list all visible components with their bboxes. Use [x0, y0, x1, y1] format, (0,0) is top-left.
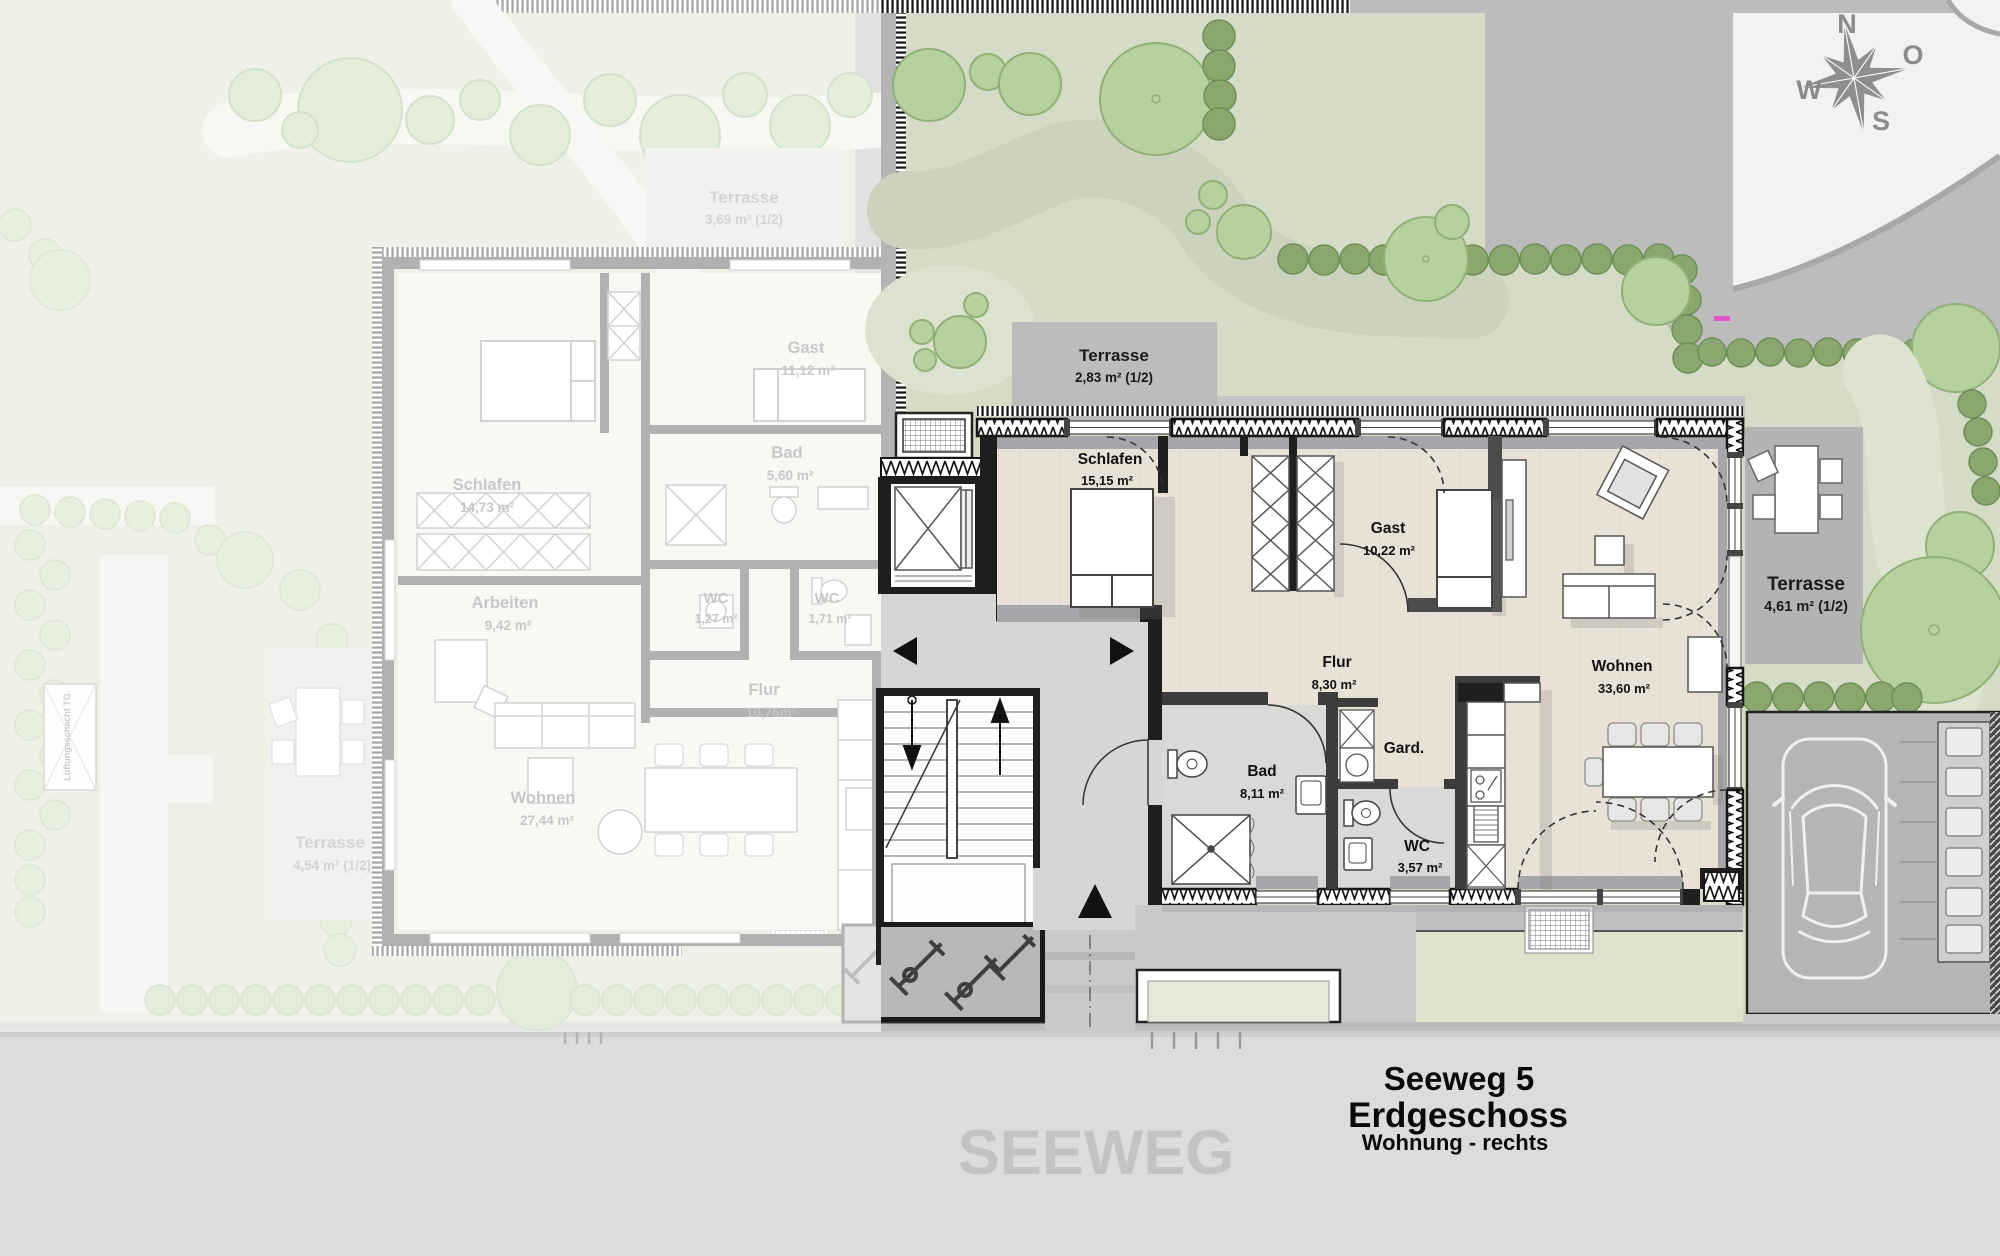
svg-text:Gard.: Gard.	[1384, 740, 1424, 757]
svg-text:2,83 m² (1/2): 2,83 m² (1/2)	[1075, 370, 1153, 385]
svg-text:3,57 m²: 3,57 m²	[1398, 860, 1443, 875]
svg-text:W: W	[1796, 75, 1822, 105]
svg-text:Bad: Bad	[1247, 763, 1276, 780]
svg-text:10,22 m²: 10,22 m²	[1363, 543, 1416, 558]
svg-text:Wohnen: Wohnen	[1592, 658, 1653, 675]
svg-text:Wohnung - rechts: Wohnung - rechts	[1362, 1130, 1549, 1155]
svg-text:Seeweg 5: Seeweg 5	[1384, 1060, 1534, 1097]
svg-text:O: O	[1902, 40, 1923, 70]
svg-text:8,30 m²: 8,30 m²	[1312, 677, 1357, 692]
svg-text:8,11 m²: 8,11 m²	[1240, 786, 1285, 801]
svg-text:S: S	[1872, 106, 1890, 136]
svg-text:4,61 m² (1/2): 4,61 m² (1/2)	[1764, 599, 1848, 615]
svg-text:SEEWEG: SEEWEG	[958, 1118, 1235, 1188]
svg-text:Gast: Gast	[1371, 520, 1405, 537]
svg-text:Terrasse: Terrasse	[1079, 346, 1149, 365]
svg-text:WC: WC	[1404, 838, 1430, 855]
svg-text:Schlafen: Schlafen	[1078, 451, 1143, 468]
svg-text:Flur: Flur	[1322, 654, 1351, 671]
svg-text:N: N	[1837, 9, 1857, 39]
svg-text:Terrasse: Terrasse	[1767, 574, 1845, 595]
svg-text:33,60 m²: 33,60 m²	[1598, 681, 1651, 696]
svg-text:15,15 m²: 15,15 m²	[1081, 473, 1134, 488]
